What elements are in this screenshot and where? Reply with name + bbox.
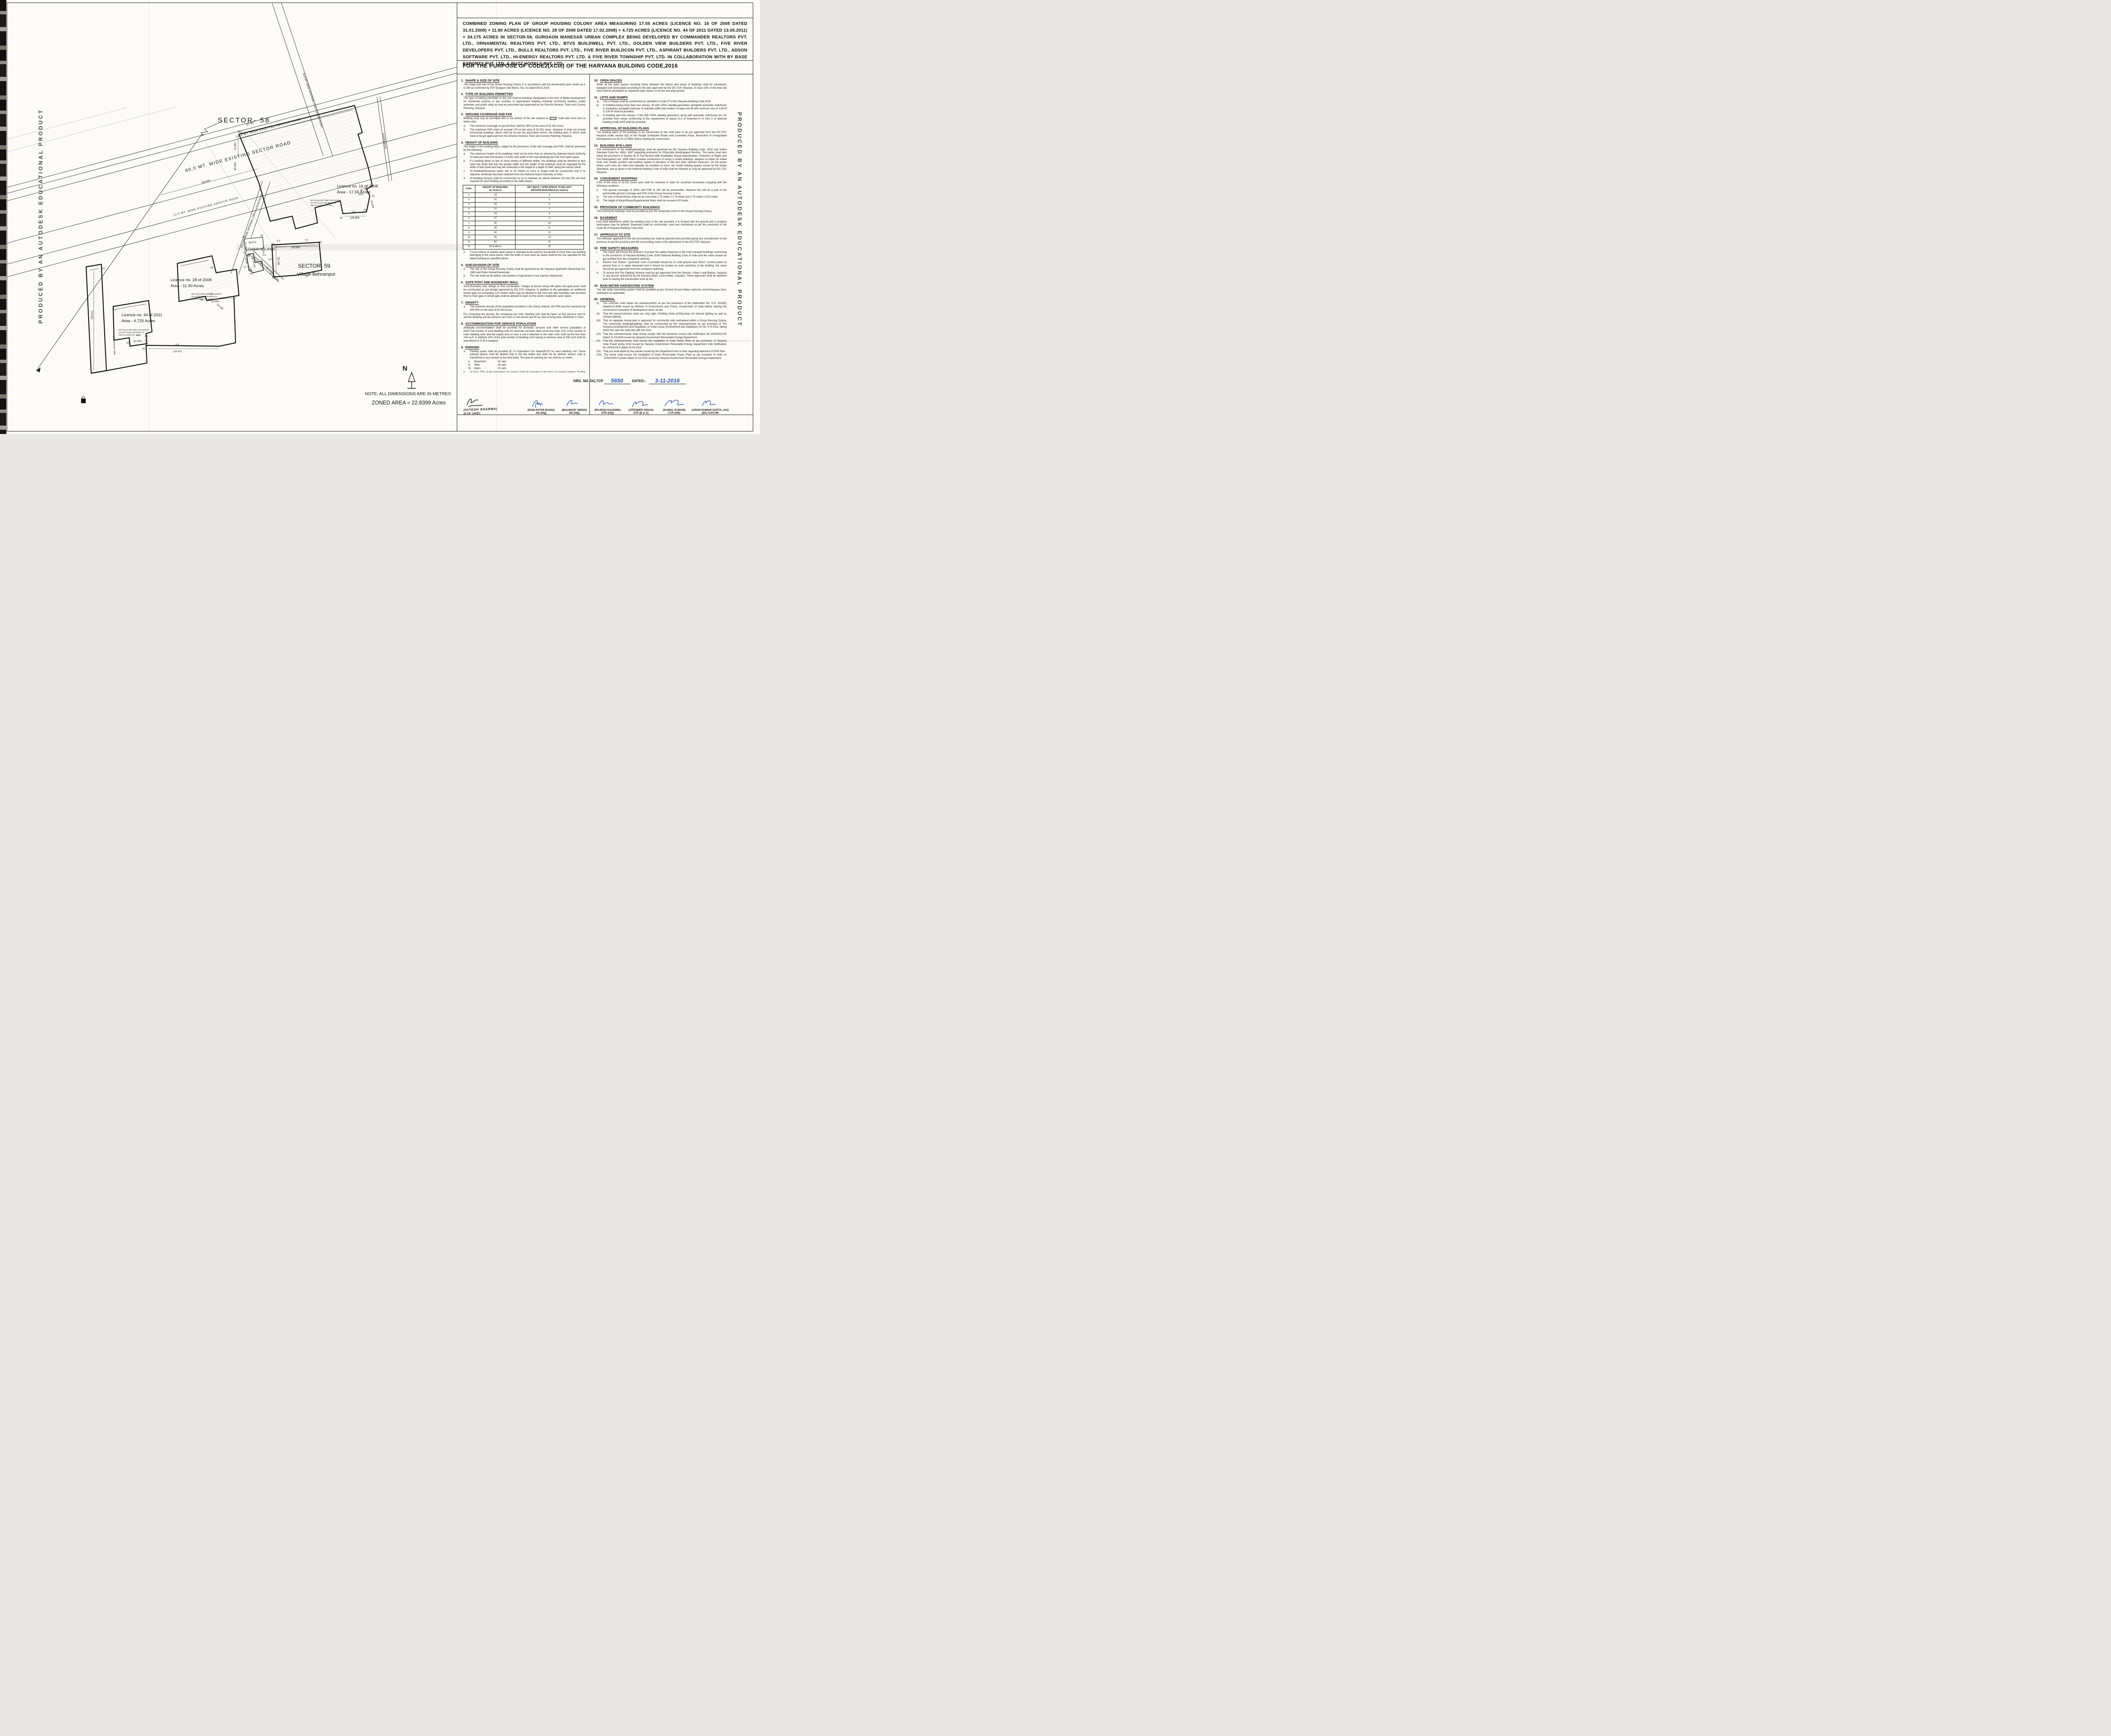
parking-rate-row: i)Basement.32 sqm. xyxy=(468,360,586,363)
section-paragraph: 0.5% of the area of 32.331 Acres area sh… xyxy=(597,181,727,187)
map-label-vertices-j: J) xyxy=(251,257,253,260)
section-title: OPEN SPACES xyxy=(600,79,622,82)
table-row: 10.4513 xyxy=(463,235,583,240)
parking-rate-row: ii)Stilts.28 sqm. xyxy=(468,363,586,367)
list-marker: (VI). xyxy=(597,350,602,353)
list-text: The size of Kiosk/Shops shall not be mor… xyxy=(603,195,727,199)
table-cell: 3. xyxy=(463,202,475,207)
drg-number-line: DRG. NO. DG,TCP 5650 DATED:- 3-11-2016 xyxy=(573,377,725,384)
section-title: BUILDING BYE-LAWS xyxy=(600,144,632,147)
list-text: The maximum coverage on ground floor sha… xyxy=(470,125,586,128)
signatory-name: (RAJESH KAUSHIK) xyxy=(592,409,624,412)
map-label-north: N xyxy=(402,365,407,372)
map-label-dims-d68: 68.732 xyxy=(278,257,280,265)
map-label-dims-d100: 100.583 xyxy=(291,247,300,249)
road-network xyxy=(7,3,457,277)
map-label-dims-d108: 108.966 xyxy=(350,217,359,220)
table-cell: 45 xyxy=(475,235,516,240)
section-list-item: (VI).That you shall abide by the policie… xyxy=(597,350,727,353)
section-number: 6. xyxy=(461,280,464,284)
table-row: 12.55 & above16 xyxy=(463,244,583,249)
section-list-item: b.If a building abuts on two or more str… xyxy=(464,160,586,169)
map-label-dims-d67: 67.056 xyxy=(212,300,220,303)
purpose-heading: FOR THE PURPOSE OF CODE2(XCIII) OF THE H… xyxy=(459,62,752,69)
section-heading: 5.SUB-DIVISION OF SITE xyxy=(461,263,586,267)
signature-row: (HITESH SHARMA)DTP (HQ)(RAM AVTAR BASSI)… xyxy=(461,389,730,415)
site-plan-map: SECTOR- 5812.0 MT. WIDE EXISTING SERVICE… xyxy=(7,3,457,431)
map-label-vertices-g: G) xyxy=(200,298,203,301)
purpose-bottom-rule xyxy=(457,74,753,74)
header-line: S.No. xyxy=(464,187,474,190)
rate-label: Open. xyxy=(474,367,496,370)
section-title: CONVENIENT SHOPPING xyxy=(600,176,637,180)
map-label-vertices-v: V) xyxy=(271,243,274,246)
signature-block: (HITESH SHARMA)DTP (HQ) xyxy=(461,396,524,415)
section-title: HEIGHT OF BUILDING xyxy=(465,141,498,144)
section-13: 13.BUILDING BYE-LAWSThe construction of … xyxy=(594,144,727,174)
section-title: DENSITY xyxy=(465,301,479,304)
map-label-vertices-s: S) xyxy=(260,234,263,237)
section-heading: 8.ACCOMMODATION FOR SERVICE POPULATION xyxy=(461,322,586,325)
list-text: At least 75% of the equivalent car space… xyxy=(470,371,586,372)
section-list-item: e.If such interior or exterior open spac… xyxy=(464,251,586,260)
map-label-lic44-l1: Licence no. 44 of 2011 xyxy=(122,313,162,317)
section-number: 20. xyxy=(594,297,598,301)
section-list-item: a.Parking space shall be provided @ 2.0 … xyxy=(464,350,586,360)
header-line: AROUND BUILDINGS.(in meters) xyxy=(516,189,582,192)
list-marker: c. xyxy=(464,170,468,176)
section-number: 1. xyxy=(461,79,464,82)
section-number: 9. xyxy=(461,345,464,349)
table-cell: 8 xyxy=(516,212,583,216)
dated-label: DATED:- xyxy=(632,379,646,383)
map-label-setback_note-2: PER CLAUSE NO. 4 (d) 4 xyxy=(310,204,333,206)
section-list-item: d.All building block(s) shall be constru… xyxy=(464,177,586,183)
map-label-vertices-y: Y) xyxy=(364,209,366,212)
title-block: COMBINED ZONING PLAN OF GROUP HOUSING CO… xyxy=(459,19,752,60)
section-list-item: iii.To ensure the Fire Fighting Scheme s… xyxy=(597,271,727,281)
section-heading: 16.BASEMENT xyxy=(594,216,727,220)
section-list-item: a.The site of the Group Housing Colony s… xyxy=(464,268,586,274)
section-title: FIRE SAFETY MEASURES xyxy=(600,246,638,250)
setback-table: S.No.HEIGHT OF BUILDING(in meters)SET BA… xyxy=(463,185,583,250)
table-cell: 11. xyxy=(463,240,475,244)
list-text: If such interior or exterior open space … xyxy=(470,251,586,260)
list-marker: b. xyxy=(464,128,468,138)
map-label-dims-d31: 31.851 xyxy=(234,142,237,150)
section-list-item: b.The site shall not be further sub divi… xyxy=(464,274,586,278)
table-cell: 12. xyxy=(463,244,475,249)
section-paragraph: The community buildings shall be provide… xyxy=(597,210,727,213)
map-label-lic44-l2: Area - 4.725 Acres xyxy=(122,319,155,323)
list-marker: a. xyxy=(464,350,468,360)
section-8: 8.ACCOMMODATION FOR SERVICE POPULATIONAd… xyxy=(461,322,586,343)
signatory-title: (DG,TCP) HR xyxy=(692,412,729,415)
list-marker: (IV) xyxy=(597,333,601,339)
list-marker: b. xyxy=(464,160,468,169)
map-label-setback_note-1: OF 18.0 M MAY BE READ AS xyxy=(191,296,217,298)
map-label-dims-six: 6.0 xyxy=(270,273,274,275)
table-cell: 6. xyxy=(463,216,475,221)
map-label-vertices-e: E) xyxy=(143,347,146,350)
section-4: 4.HEIGHT OF BUILDINGThe height of the bu… xyxy=(461,141,586,260)
section-number: 15. xyxy=(594,205,598,209)
map-label-dims-six: 6.0 xyxy=(263,254,266,257)
table-cell: 16 xyxy=(516,244,583,249)
table-row: 11.5014 xyxy=(463,240,583,244)
section-heading: 2.TYPE OF BUILDING PERMITTED xyxy=(461,92,586,96)
map-label-vertices-u: U) xyxy=(272,277,275,279)
table-cell: 5. xyxy=(463,212,475,216)
table-row: 9.4012 xyxy=(463,231,583,235)
list-marker: (III) xyxy=(597,319,601,332)
table-cell: 10 xyxy=(475,193,516,198)
section-number: 11. xyxy=(594,95,598,99)
table-cell: 10. xyxy=(463,235,475,240)
map-label-setback_note-0: SET BACK BEYOND THE HEIGHT xyxy=(119,329,149,331)
list-text: The maximum FAR shall not exceed 175 on … xyxy=(470,128,586,138)
map-label-vertices-c: C) xyxy=(127,342,130,344)
list-text: That you shall abide by the policies iss… xyxy=(603,350,727,353)
section-12: 12.APPROVAL OF BUILDING PLANSThe buildin… xyxy=(594,126,727,141)
table-header-cell: SET BACK / OPEN SPACE TO BE LEFTAROUND B… xyxy=(516,185,583,193)
list-marker: ii) xyxy=(597,195,601,199)
section-paragraph: Such Boundary wall, railings or their co… xyxy=(464,285,586,298)
section-11: 11.LIFTS AND RAMPSa)Lifts & Ramps shall … xyxy=(594,95,727,124)
table-cell: 12 xyxy=(516,231,583,235)
signature-block: (JITENDER SIHAG)STP (E & V) xyxy=(624,398,658,415)
signatory-name: (KAMAL KUMAR) xyxy=(659,409,690,412)
signature-block: (ARUN KUMAR GUPTA, IAS)(DG,TCP) HR xyxy=(691,398,730,415)
signatory-name: (ARUN KUMAR GUPTA, IAS) xyxy=(692,409,729,412)
table-cell: 5 xyxy=(516,198,583,202)
signatory-name: (RAM AVTAR BASSI) xyxy=(525,409,557,412)
map-label-village: Village-Behrampur xyxy=(297,272,336,277)
map-label-vertices-d: D) xyxy=(145,335,148,338)
survey-marker xyxy=(81,396,86,403)
map-label-setback_note-0: SET BACK BEYOND THE HEIGHT xyxy=(310,199,341,201)
header-line: (in meters) xyxy=(476,189,514,192)
buildable-zone-swatch xyxy=(550,117,556,120)
section-heading: 18.FIRE SAFETY MEASURES xyxy=(594,246,727,250)
list-marker: d. xyxy=(464,177,468,183)
signatory-name: (BALWANT SINGH) xyxy=(559,409,590,412)
section-title: GATE POST AND BOUNDARY WALL xyxy=(465,280,518,284)
list-marker: i) xyxy=(468,360,472,363)
section-3: 3.GROUND COVERAGE AND FARBuilding shall … xyxy=(461,112,586,138)
list-marker: c) xyxy=(597,114,601,124)
section-list-item: i.The owner will ensure the provision of… xyxy=(597,251,727,260)
section-number: 8. xyxy=(461,322,464,325)
section-1: 1.SHAPE & SIZE OF SITEThe shape and size… xyxy=(461,79,586,90)
list-marker: e. xyxy=(464,251,468,260)
map-label-setback_note-1: OF 18.0 M MAY BE READ AS xyxy=(119,331,144,334)
map-label-sector59: SECTOR- 59 xyxy=(298,263,330,269)
table-cell: 24 xyxy=(475,212,516,216)
list-text: All building block(s) shall be construct… xyxy=(470,177,586,183)
list-marker: iii. xyxy=(597,271,601,281)
section-list-item: (III)That no separate zoning plan is app… xyxy=(597,319,727,332)
table-cell: 6 xyxy=(516,202,583,207)
section-title: GENERAL xyxy=(600,297,615,301)
map-label-dims-d58: 58.674 xyxy=(249,241,257,244)
table-row: 2.155 xyxy=(463,198,583,202)
drg-label: DRG. NO. DG,TCP xyxy=(573,379,603,383)
section-heading: 9.PARKING xyxy=(461,345,586,349)
list-text: The colonizer shall obtain the clearance… xyxy=(603,302,727,312)
section-paragraph: For computing the density, the occupancy… xyxy=(464,313,586,319)
section-list-item: ii)The size of Kiosk/Shops shall not be … xyxy=(597,195,727,199)
map-label-vertices-w: W) xyxy=(318,241,322,244)
section-10: 10.OPEN SPACESWhile all the open spaces … xyxy=(594,79,727,93)
section-number: 13. xyxy=(594,144,598,147)
list-marker: i. xyxy=(597,251,601,260)
map-label-dims-six: 6.0 xyxy=(209,293,213,296)
signature-block: (KAMAL KUMAR)CTP (HR) xyxy=(658,398,691,415)
section-title: ACCOMMODATION FOR SERVICE POPULATION xyxy=(465,322,536,325)
section-list-item: (V).That the coloniser/owner shall ensur… xyxy=(597,339,727,349)
section-title: LIFTS AND RAMPS xyxy=(600,95,628,99)
list-text: The site shall not be further sub divide… xyxy=(470,274,586,278)
table-cell: 40 xyxy=(475,231,516,235)
map-label-vertices-m: M) xyxy=(247,255,250,258)
section-number: 7. xyxy=(461,301,464,304)
table-cell: 4. xyxy=(463,207,475,212)
list-text: The maximum height of the buildings shal… xyxy=(470,152,586,159)
signatory-title: STP (E & V) xyxy=(625,412,657,415)
signature-scribble xyxy=(663,398,685,409)
section-title: PROVISION OF COMMUNITY BUILDINGS xyxy=(600,205,660,209)
table-cell: 9. xyxy=(463,231,475,235)
map-label-dims-d24: 24.005 xyxy=(216,304,224,311)
signature-scribble xyxy=(563,398,585,409)
section-list-item: b.The maximum FAR shall not exceed 175 o… xyxy=(464,128,586,138)
list-marker: (VII). xyxy=(597,353,602,360)
list-marker: a) xyxy=(597,100,601,103)
map-label-dims-d33: 33.528 xyxy=(370,200,374,209)
list-marker: i) xyxy=(597,189,601,195)
list-text: That no separate zoning plan is approved… xyxy=(603,319,727,332)
list-text: Lifts & Ramps shall be constructed as sp… xyxy=(603,100,727,103)
map-label-dims-six: 6.0 xyxy=(248,269,252,272)
map-label-setback_note-1: OF 18.0 M MAY BE READ AS xyxy=(310,202,336,204)
map-label-dims-six: 6.0 xyxy=(269,258,272,261)
section-number: 17. xyxy=(594,233,598,236)
signature-scribble xyxy=(530,398,552,409)
list-text: If a building abuts on two or more stree… xyxy=(470,160,586,169)
map-label-dims-six: 6.0 xyxy=(277,240,280,242)
section-paragraph: The vehicular approach to the site and p… xyxy=(597,237,727,244)
map-label-dims-d134: 134.112 xyxy=(173,350,182,353)
section-number: 10. xyxy=(594,79,598,82)
table-cell: 15 xyxy=(475,198,516,202)
section-number: 3. xyxy=(461,112,464,116)
list-text: The owner shall ensure the installation … xyxy=(604,353,727,360)
section-list-item: a.The maximum coverage on ground floor s… xyxy=(464,125,586,128)
section-number: 19. xyxy=(594,284,598,288)
map-label-dims-six: 6.0 xyxy=(352,211,355,213)
map-label-vertices-za: ZA) xyxy=(358,193,363,196)
section-paragraph: Four level basements within the building… xyxy=(597,220,727,230)
section-title: RAIN WATER HARVESTING SYSTEM xyxy=(600,284,654,288)
table-cell: 7 xyxy=(516,207,583,212)
table-row: 1.103 xyxy=(463,193,583,198)
table-cell: 13 xyxy=(516,235,583,240)
table-cell: 11 xyxy=(516,226,583,231)
table-cell: 8. xyxy=(463,226,475,231)
section-15: 15.PROVISION OF COMMUNITY BUILDINGSThe c… xyxy=(594,205,727,213)
parking-rate-row: iii)Open.23 sqm. xyxy=(468,367,586,370)
signatory-title: CTP (HR) xyxy=(659,412,690,415)
section-number: 16. xyxy=(594,216,598,220)
map-label-lic28-l2: Area - 11.90 Acres xyxy=(171,284,204,288)
list-marker: a. xyxy=(464,305,468,312)
drg-number-handwritten: 5650 xyxy=(604,377,630,384)
map-label-dims-d11: 11.735 xyxy=(244,242,247,249)
map-label-dims-d67: 67.056 xyxy=(134,340,142,343)
table-cell: 27 xyxy=(475,216,516,221)
zoning-notes: 1.SHAPE & SIZE OF SITEThe shape and size… xyxy=(457,75,753,372)
section-title: BASEMENT xyxy=(600,216,617,220)
list-text: Parking space shall be provided @ 2.0 Eq… xyxy=(470,350,586,360)
section-list-item: (IV)That the coloniser/owner shall stric… xyxy=(597,333,727,339)
signature-bottom-rule xyxy=(457,415,753,415)
list-marker: a. xyxy=(464,152,468,159)
map-label-note1: NOTE: ALL DIMENSIONS ARE IN METRES xyxy=(365,392,451,396)
section-list-item: ii.Electric Sub Station / generator room… xyxy=(597,261,727,271)
table-cell: 3 xyxy=(516,193,583,198)
map-label-lic28-l1: Licence no. 28 of 2008 xyxy=(171,278,212,282)
table-header-cell: HEIGHT OF BUILDING(in meters) xyxy=(475,185,516,193)
section-17: 17.APPROACH TO SITEThe vehicular approac… xyxy=(594,233,727,244)
scanned-zoning-plan: SECTOR- 5812.0 MT. WIDE EXISTING SERVICE… xyxy=(0,0,760,434)
list-marker: iii) xyxy=(468,367,472,370)
map-label-existing_bund: Existing Bund xyxy=(382,133,387,149)
section-list-item: c.All Building/Structures which rise to … xyxy=(464,170,586,176)
rate-value: 32 sqm. xyxy=(498,360,507,363)
autodesk-watermark-left: PRODUCED BY AN AUTODESK EDUCATIONAL PROD… xyxy=(38,109,44,324)
section-heading: 12.APPROVAL OF BUILDING PLANS xyxy=(594,126,727,130)
table-cell: 55 & above xyxy=(475,244,516,249)
table-row: 4.217 xyxy=(463,207,583,212)
map-label-others_land: OTHER'S LAND xyxy=(244,247,275,251)
signature-block: (RAM AVTAR BASSI)AD (HQ) xyxy=(524,398,558,415)
header-line: HEIGHT OF BUILDING xyxy=(476,186,514,189)
table-row: 5.248 xyxy=(463,212,583,216)
section-title: PARKING xyxy=(465,345,479,349)
list-text: In building upto four storeys, if lifts … xyxy=(603,114,727,124)
map-label-dims-three: 3.0 xyxy=(101,268,105,270)
signature-scribble xyxy=(699,398,721,409)
section-heading: 14.CONVENIENT SHOPPING xyxy=(594,176,727,180)
table-cell: 10 xyxy=(516,221,583,226)
signature-scribble xyxy=(465,396,487,407)
map-label-sector58: SECTOR- 58 xyxy=(218,117,270,124)
map-label-note2: ZONED AREA = 22.8399 Acres xyxy=(372,400,445,406)
parcel-west-strip xyxy=(86,264,106,373)
map-label-vertices-z: Z) xyxy=(372,195,374,198)
list-marker: b. xyxy=(464,274,468,278)
list-text: That the coloniser/owner shall strictly … xyxy=(603,333,727,339)
map-label-dims-six: 6.0 xyxy=(136,334,140,337)
rate-value: 23 sqm. xyxy=(498,367,507,370)
north-arrow xyxy=(407,372,416,388)
map-label-vertices-l: L) xyxy=(244,266,246,269)
table-cell: 30 xyxy=(475,221,516,226)
list-marker: (I) xyxy=(597,302,601,312)
section-paragraph: The type of building permitted on this s… xyxy=(464,97,586,110)
section-14: 14.CONVENIENT SHOPPING0.5% of the area o… xyxy=(594,176,727,202)
list-text: The owner will ensure the provision of p… xyxy=(603,251,727,260)
section-number: 4. xyxy=(461,141,464,144)
section-list-item: (VII).The owner shall ensure the install… xyxy=(597,353,727,360)
signatory-title: DTP (HQ) xyxy=(592,412,624,415)
signatory-name: (JITENDER SIHAG) xyxy=(625,409,657,412)
signatory-title: AD (HQ) xyxy=(525,412,557,415)
rate-label: Stilts. xyxy=(474,363,496,367)
list-text: All Building/Structures which rise to 30… xyxy=(470,170,586,176)
map-label-dims-d208: 208.995 xyxy=(201,179,211,184)
section-heading: 13.BUILDING BYE-LAWS xyxy=(594,144,727,147)
section-heading: 1.SHAPE & SIZE OF SITE xyxy=(461,79,586,82)
section-list-item: a.The maximum height of the buildings sh… xyxy=(464,152,586,159)
section-paragraph: The height of the building block, subjec… xyxy=(464,145,586,152)
list-marker: a. xyxy=(464,125,468,128)
section-heading: 11.LIFTS AND RAMPS xyxy=(594,95,727,99)
header-line: SET BACK / OPEN SPACE TO BE LEFT xyxy=(516,186,582,189)
section-16: 16.BASEMENTFour level basements within t… xyxy=(594,216,727,230)
map-label-dims-six: 6.0 xyxy=(305,239,308,241)
signatory-title: SD (HQ) xyxy=(559,412,590,415)
section-paragraph: The shape and size of the Group Housing … xyxy=(464,83,586,90)
map-label-dims-d13: 13.767 xyxy=(144,339,147,347)
section-6: 6.GATE POST AND BOUNDARY WALLSuch Bounda… xyxy=(461,280,586,298)
section-9: 9.PARKINGa.Parking space shall be provid… xyxy=(461,345,586,372)
list-text: That the coloniser/owner shall ensure th… xyxy=(603,339,727,349)
section-list-item: b.At least 75% of the equivalent car spa… xyxy=(464,371,586,372)
section-list-item: (I)The colonizer shall obtain the cleara… xyxy=(597,302,727,312)
list-text: That the owner/coloniser shall use only … xyxy=(603,312,727,319)
section-heading: 17.APPROACH TO SITE xyxy=(594,233,727,236)
list-marker: a. xyxy=(464,268,468,274)
list-marker: (II) xyxy=(597,312,601,319)
section-title: TYPE OF BUILDING PERMITTED xyxy=(465,92,513,96)
table-cell: 9 xyxy=(516,216,583,221)
section-heading: 15.PROVISION OF COMMUNITY BUILDINGS xyxy=(594,205,727,209)
signature-scribble xyxy=(597,398,619,409)
map-label-dims-d18: 18.441 xyxy=(244,257,247,264)
list-marker: (V). xyxy=(597,339,601,349)
section-paragraph: Adequate accommodation shall be provided… xyxy=(464,326,586,343)
section-title: GROUND COVERAGE AND FAR xyxy=(465,112,512,116)
list-marker: b) xyxy=(597,104,601,114)
map-label-vertices-k: K) xyxy=(211,266,214,269)
table-cell: 50 xyxy=(475,240,516,244)
list-text: In building having more than four storey… xyxy=(603,104,727,114)
drg-date-handwritten: 3-11-2016 xyxy=(649,377,686,384)
list-marker: b. xyxy=(464,371,468,372)
map-label-road_service: 12.0 MT. WIDE EXISTING SERVICE ROAD xyxy=(173,197,239,217)
section-list-item: a.The minimum density of the population … xyxy=(464,305,586,312)
table-header-row: S.No.HEIGHT OF BUILDING(in meters)SET BA… xyxy=(463,185,583,193)
table-cell: 21 xyxy=(475,207,516,212)
section-number: 5. xyxy=(461,263,464,267)
section-18: 18.FIRE SAFETY MEASURESi.The owner will … xyxy=(594,246,727,281)
table-cell: 2. xyxy=(463,198,475,202)
section-heading: 4.HEIGHT OF BUILDING xyxy=(461,141,586,144)
map-label-lic16-l1: Licence no. 16 of 2008 xyxy=(337,184,378,189)
section-heading: 6.GATE POST AND BOUNDARY WALL xyxy=(461,280,586,284)
